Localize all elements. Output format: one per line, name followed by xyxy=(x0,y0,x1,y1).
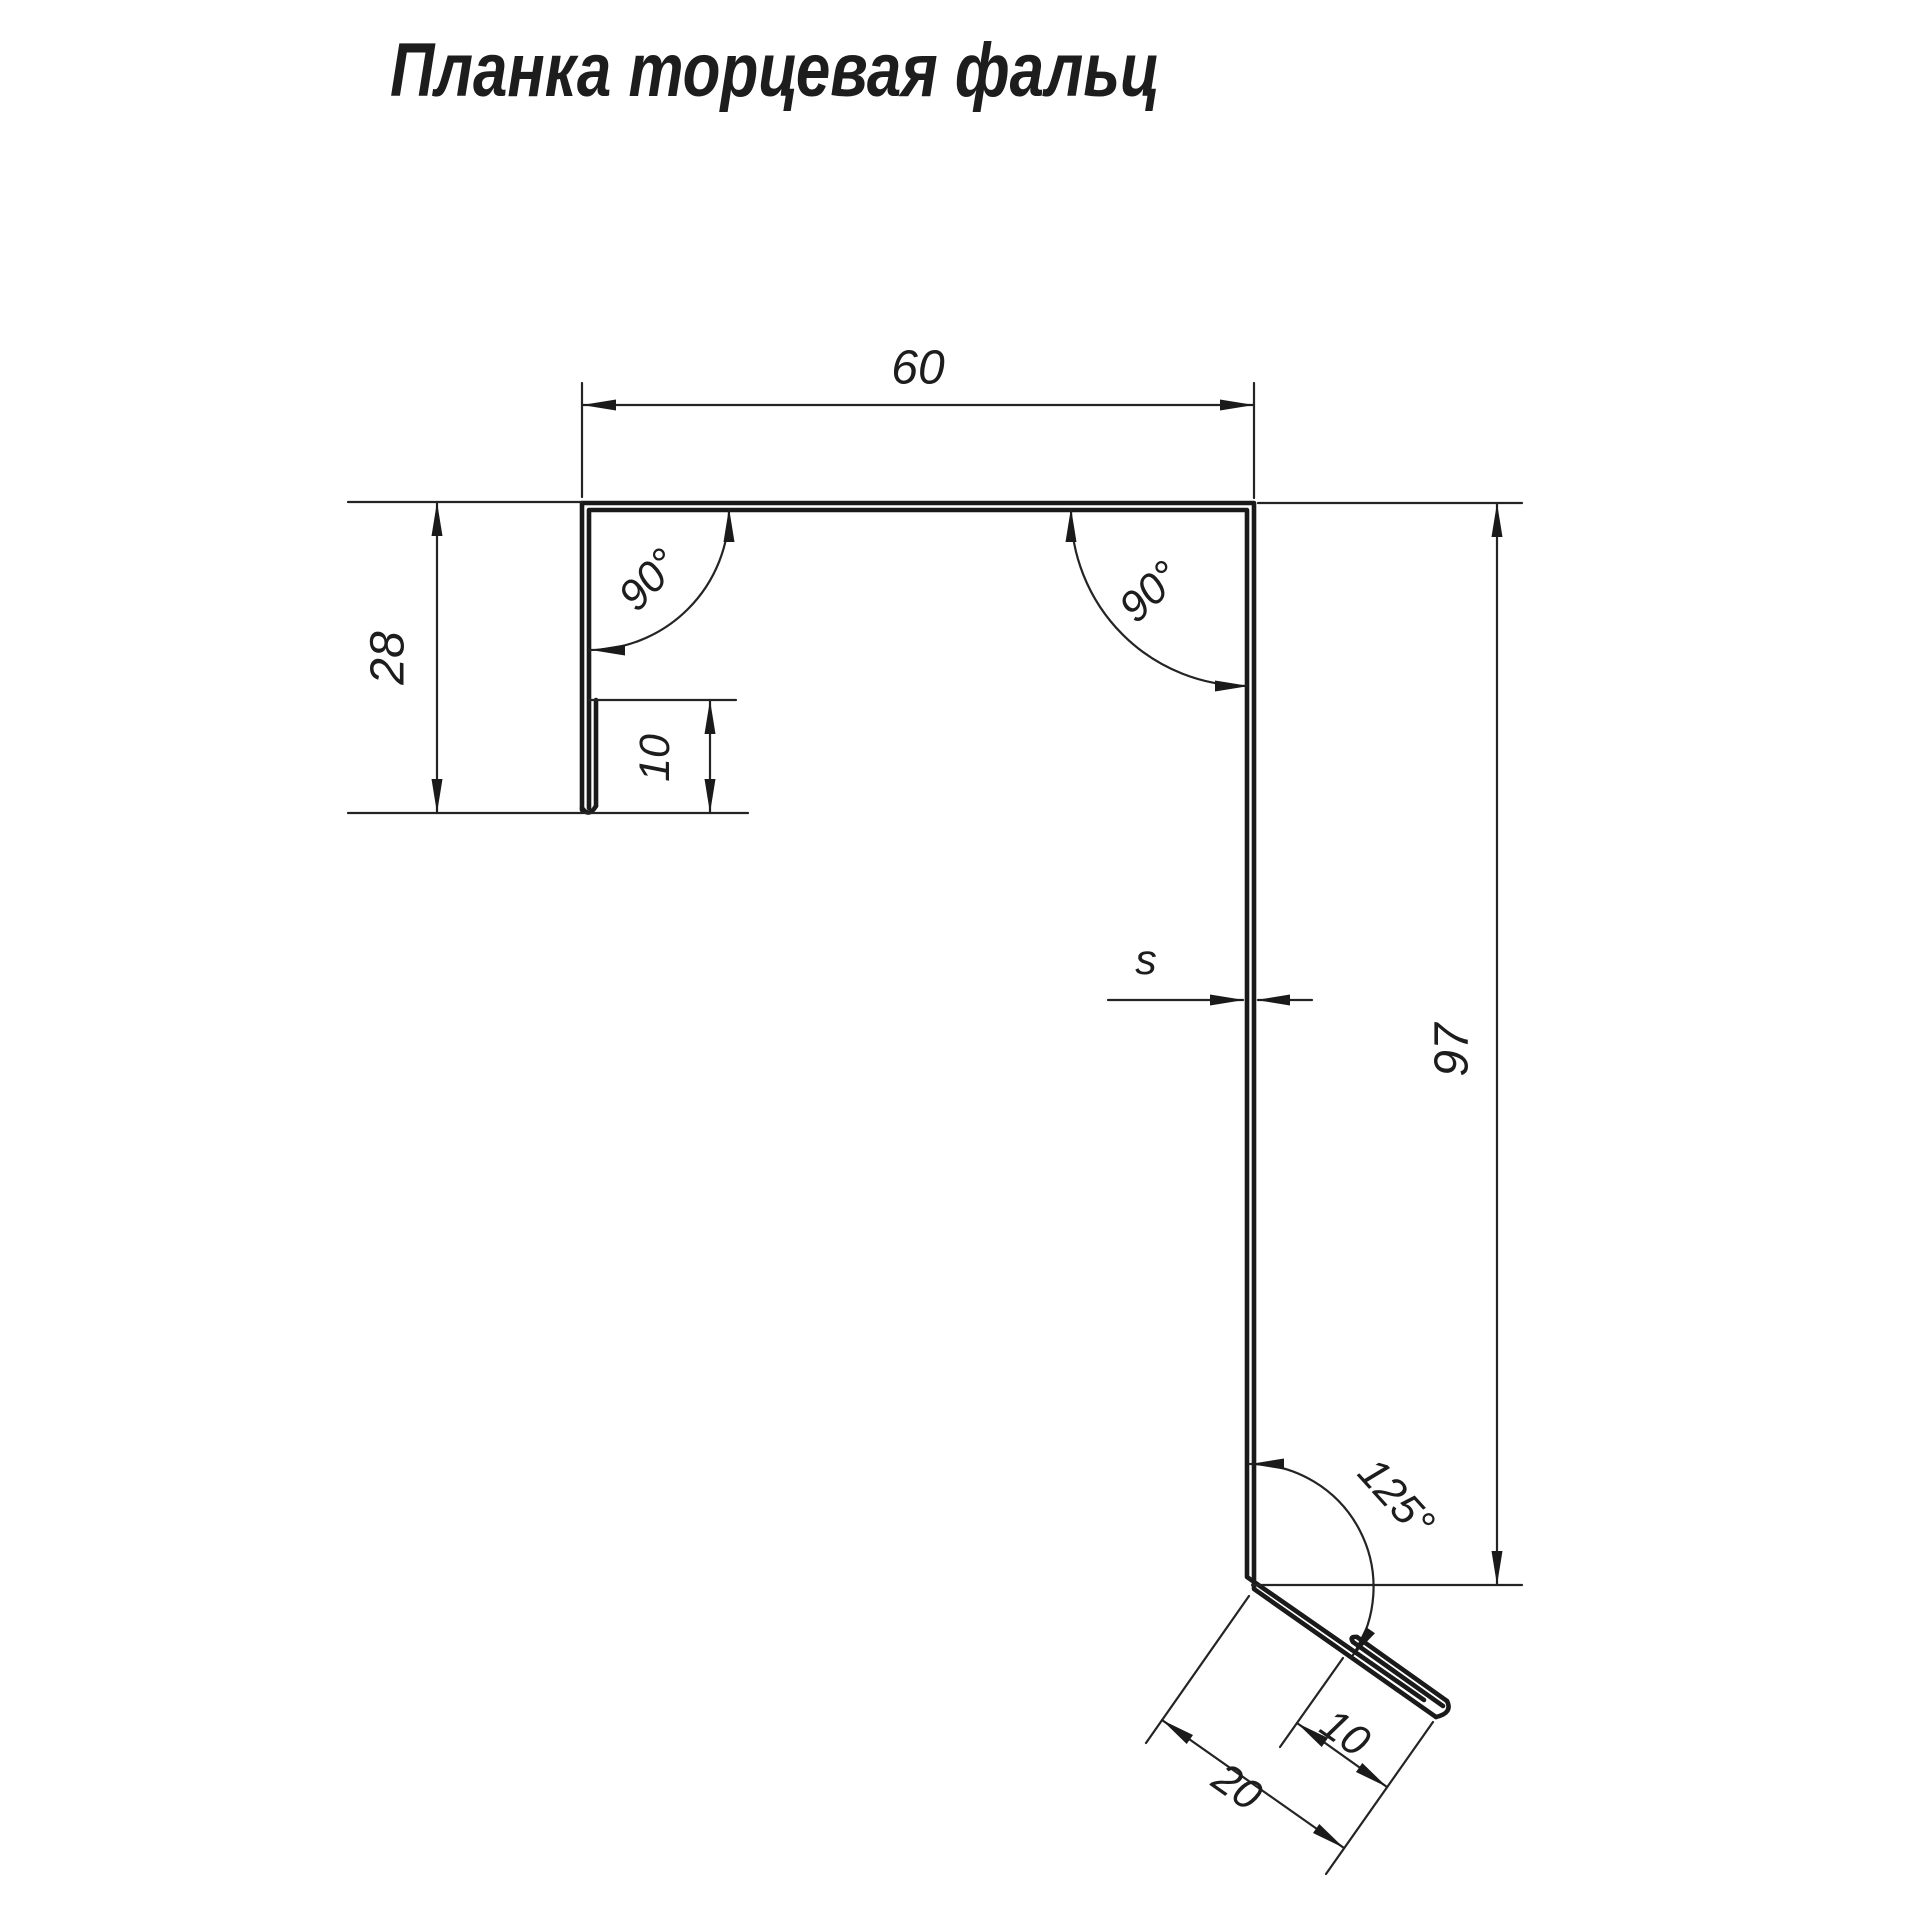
arrow-97-bottom xyxy=(1492,1551,1503,1585)
dim-kick-hem-label: 10 xyxy=(1312,1700,1379,1767)
dim-thickness-label: s xyxy=(1135,936,1157,984)
drawing-title: Планка торцевая фальц xyxy=(390,28,1160,113)
arrow-10-left-bottom xyxy=(705,779,716,813)
drawing-sheet: Планка торцевая фальц xyxy=(0,0,1907,1920)
technical-drawing: Планка торцевая фальц xyxy=(0,0,1907,1920)
angle-bottom-label: 125° xyxy=(1348,1449,1443,1547)
arrow-97-top xyxy=(1492,503,1503,537)
profile-kick-hem-edge xyxy=(1352,1637,1357,1642)
profile-kick-hem-line1 xyxy=(1353,1642,1443,1706)
arrow-28-bottom xyxy=(432,779,443,813)
arrow-s-right xyxy=(1256,995,1290,1006)
dim-top-width-label: 60 xyxy=(891,342,945,395)
arrow-arc90L-side xyxy=(591,645,625,656)
angle-top-right-label: 90° xyxy=(1110,552,1190,632)
dimension-arrows xyxy=(432,400,1503,1849)
profile-outer-surface xyxy=(582,503,1436,1717)
dim-kick-length-label: 20 xyxy=(1203,1753,1271,1820)
profile-outline xyxy=(582,503,1449,1717)
arrow-60-left xyxy=(582,400,616,411)
arrow-20-kick-upper xyxy=(1162,1720,1193,1744)
arrow-10-kick-lower xyxy=(1356,1763,1387,1787)
arrow-28-top xyxy=(432,502,443,536)
dimension-lines xyxy=(437,405,1497,1848)
arrow-arc90R-side xyxy=(1215,681,1249,692)
arrow-10-left-top xyxy=(705,700,716,734)
profile-inner-surface xyxy=(589,510,1424,1700)
extension-lines xyxy=(348,383,1522,1874)
dim-left-hem-label: 10 xyxy=(631,734,679,782)
arrow-s-left xyxy=(1210,995,1244,1006)
angle-top-left-label: 90° xyxy=(609,540,688,620)
arrow-60-right xyxy=(1220,400,1254,411)
dimension-labels: 60 28 10 97 s 90° 90° 125° 10 20 xyxy=(362,342,1479,1821)
arrow-arc90L-top xyxy=(724,508,735,542)
dim-left-height-label: 28 xyxy=(362,631,415,686)
arrow-20-kick-lower xyxy=(1313,1824,1344,1848)
dim-right-height-label: 97 xyxy=(1426,1021,1479,1077)
arrow-arc90R-top xyxy=(1066,508,1077,542)
